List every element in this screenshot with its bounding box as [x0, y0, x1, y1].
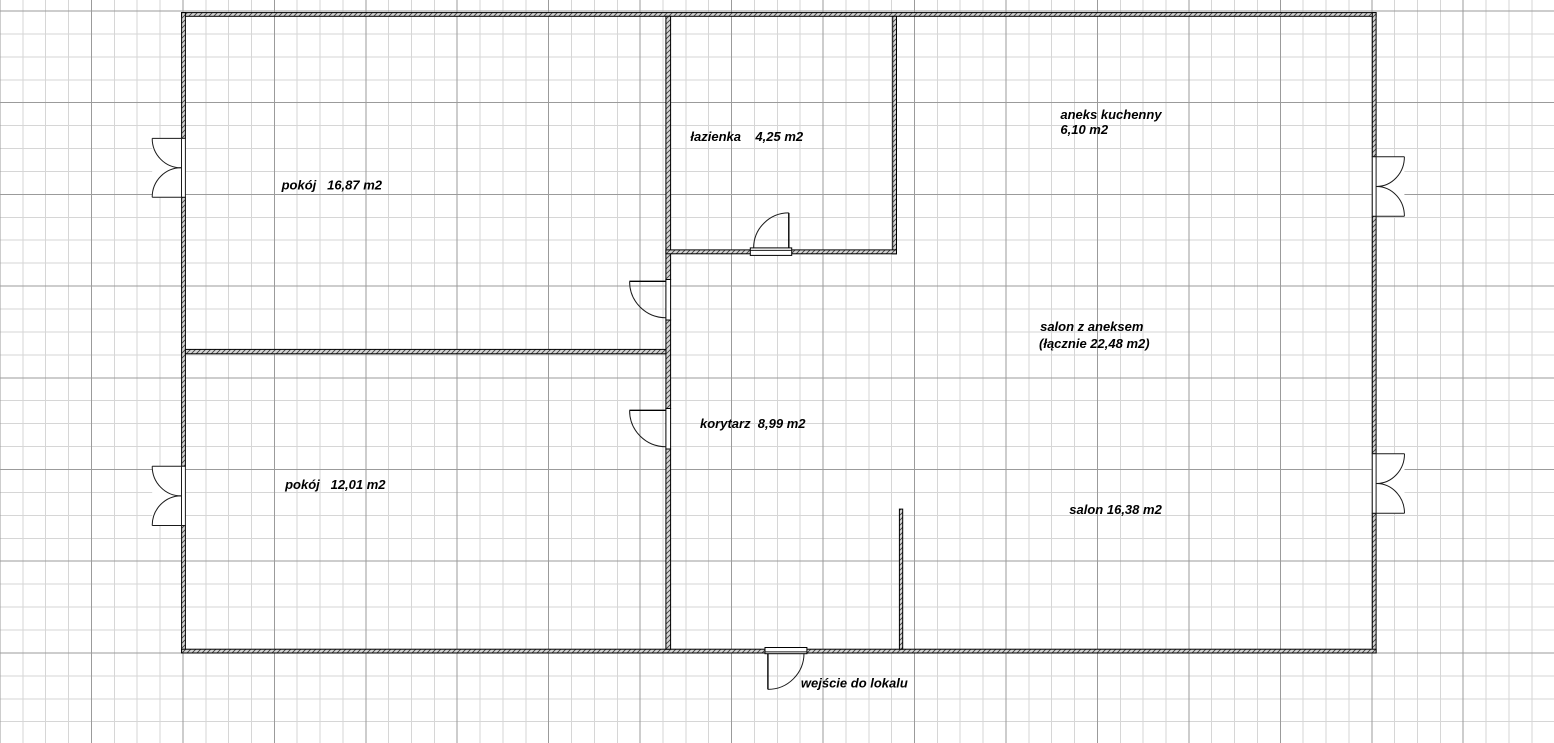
svg-text:łazienka 4,25 m2: łazienka 4,25 m2 [690, 129, 804, 144]
svg-text:(łącznie 22,48 m2): (łącznie 22,48 m2) [1039, 336, 1150, 351]
svg-text:salon 16,38 m2: salon 16,38 m2 [1069, 502, 1162, 517]
svg-text:wejście do lokalu: wejście do lokalu [801, 676, 908, 691]
svg-text:aneks kuchenny: aneks kuchenny [1060, 107, 1162, 122]
svg-text:korytarz 8,99 m2: korytarz 8,99 m2 [700, 416, 806, 431]
svg-text:pokój 16,87 m2: pokój 16,87 m2 [281, 178, 383, 193]
svg-text:6,10 m2: 6,10 m2 [1060, 122, 1108, 137]
svg-text:pokój 12,01 m2: pokój 12,01 m2 [284, 477, 386, 492]
svg-text:salon z aneksem: salon z aneksem [1040, 319, 1144, 334]
